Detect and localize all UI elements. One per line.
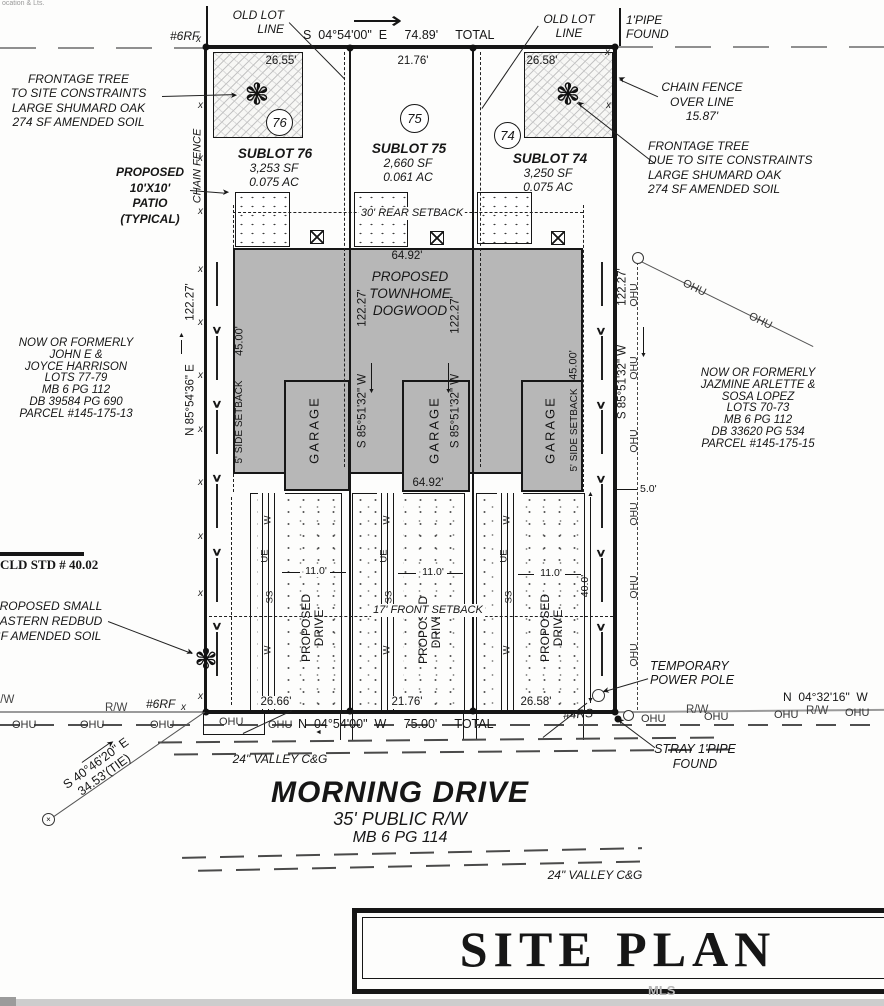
window-edge-strip [0,999,884,1006]
chevron-icon: ∨ [595,324,607,338]
dim-front-76: 26.55' [266,55,297,68]
building-width-bottom: 64.92' [413,477,444,490]
bearing-arrow-line [181,340,182,354]
arrow-down-icon: ▼ [640,352,647,359]
rear-setback-label: 30' REAR SETBACK [359,207,465,220]
valley-gutter-line [182,847,642,859]
fence-x-icon: x [198,264,203,275]
frontage-tree-note-left: FRONTAGE TREETO SITE CONSTRAINTSLARGE SH… [0,72,157,129]
dim-tick [398,573,416,574]
lot-number: 74 [500,128,514,143]
old-lot-line-2 [480,52,481,467]
owner-note-right: NOW OR FORMERLYJAZMINE ARLETTE &SOSA LOP… [682,368,834,451]
street-plat: MB 6 PG 114 [353,829,448,848]
dim-tick [447,573,463,574]
arrow-up-icon: ▲ [178,332,185,339]
boundary-line-left [204,45,207,714]
valley-gutter-line [158,737,723,744]
ohu-label: OHU [845,707,869,720]
utility-w-label: W [381,516,392,525]
stray-pipe-dot [615,716,622,723]
boundary-line-top [204,45,617,49]
utility-box-icon [310,230,324,244]
arrow-down-icon: ▼ [445,388,452,395]
utility-w-label: W [501,646,512,655]
ohu-label: OHU [628,356,640,379]
ohu-label-diagonal: OHU [746,310,774,332]
dim-rear-75: 21.76' [390,696,425,709]
valley-gutter-label-2: 24" VALLEY C&G [548,869,643,883]
drive-label-74: PROPOSEDDRIVE [539,594,565,662]
chevron-icon: ∨ [211,397,223,411]
top-bearing: S 04°54'00" E 74.89' TOTAL [303,28,494,43]
ohu-label: OHU [80,719,104,732]
ohu-label: OHU [628,643,640,666]
utility-line [381,493,382,710]
fence-x-icon: x [198,588,203,599]
swale-line-drive1 [231,497,232,705]
chain-fence-over-note: CHAIN FENCEOVER LINE15.87' [652,80,752,124]
fence-x-icon: x [198,153,203,164]
ohu-label: OHU [150,719,174,732]
drive-width-76: 11.0' [303,565,329,577]
old-lot-line-label-left: OLD LOTLINE [224,8,284,37]
building-depth-left: 45.00' [234,326,247,356]
ohu-label: OHU [219,716,243,729]
drive-width-75: 11.0' [420,566,446,578]
patio-sublot76 [235,192,290,247]
street-bearing-right: N 04°32'16" W [783,691,868,705]
bearing-arrow-line [643,327,644,355]
sublot76-sf: 3,253 SF [250,162,299,176]
street-row: 35' PUBLIC R/W [333,809,466,830]
fence-x-icon: x [605,47,610,58]
lot-number-circle-75: 75 [400,104,429,133]
utility-box-icon [551,231,565,245]
arrow-head-icon: ➤ [222,187,230,198]
sublot74-sf: 3,250 SF [524,167,573,181]
cld-std-bar [0,552,84,556]
utility-ss-label: SS [264,591,275,604]
dim-line-40ft [590,497,591,703]
old-lot-line-label-right: OLD LOTLINE [538,12,600,41]
sublot76-name: SUBLOT 76 [238,146,312,162]
side-setback-label-left: 5' SIDE SETBACK [234,380,246,463]
arrow-head-icon: ➤ [230,90,238,101]
dim-front-74: 26.58' [527,55,558,68]
corner-monument [612,44,619,51]
ohu-label: OHU [12,719,36,732]
chevron-icon: ∨ [211,545,223,559]
patio-note: PROPOSED10'X10'PATIO(TYPICAL) [110,165,190,227]
temp-pole-icon [592,689,605,702]
utility-line [501,493,502,710]
mls-watermark: MLS [648,983,675,998]
lot-number: 75 [407,111,421,126]
drive-area-sublot75 [352,493,465,712]
cutoff-corner-text: ocation & Lts. [2,0,44,8]
owner-note-left: NOW OR FORMERLYJOHN E &JOYCE HARRISONLOT… [0,338,152,421]
bottom-bearing: N 04°54'00" W 75.00' TOTAL [298,717,494,732]
dim-tick [330,572,346,573]
lot-line-bearing-right: S 85°51'32" W [449,374,462,448]
sublot74-name: SUBLOT 74 [513,151,587,167]
old-lot-line-1 [344,52,345,467]
cld-std-label: CLD STD # 40.02 [0,557,98,572]
street-name: MORNING DRIVE [271,776,529,811]
sublot75-sf: 2,660 SF [384,157,433,171]
lot-number-circle-76: 76 [266,109,293,136]
pin-stub-top-left [206,6,208,46]
arrow-up-icon: ▲ [587,491,594,498]
chevron-icon: ∨ [211,323,223,337]
sublot74-ac: 0.075 AC [523,181,573,195]
utility-w-label: W [381,646,392,655]
chevron-icon: ∨ [211,471,223,485]
rw-label: R/W [105,702,127,715]
sublot75-name: SUBLOT 75 [372,141,446,157]
patio-sublot74 [477,192,532,244]
frontage-tree-note-right: FRONTAGE TREEDUE TO SITE CONSTRAINTSLARG… [648,139,812,196]
fence-x-icon: x [606,100,611,111]
building-width-top: 64.92' [390,250,425,263]
dim-rear-76: 26.66' [259,696,294,709]
side-setback-label-right: 5' SIDE SETBACK [569,388,581,471]
drive-width-74: 11.0' [538,567,564,579]
side-gap-tick [615,489,637,490]
garage-label-76: GARAGE [306,396,321,464]
utility-ss-label: SS [503,591,514,604]
fence-x-icon: x [198,206,203,217]
utility-line [262,493,263,710]
chevron-icon: ∨ [595,398,607,412]
fence-x-icon: x [198,100,203,111]
lot-number-circle-74: 74 [494,122,521,149]
side-gap-dim: 5.0' [640,483,657,495]
rw-label: R/W [0,694,14,707]
apron-depth-dim: 40.0' [579,575,591,597]
garage-label-74: GARAGE [542,396,557,464]
window-edge-corner [0,997,16,1006]
monument-circle-icon: × [42,813,55,826]
rs4-marker: #4RS [563,707,594,723]
fence-x-icon: x [198,370,203,381]
rw-label: R/W [686,704,708,717]
rf6-marker-bottom: #6RF [146,698,175,712]
tree-icon: ❃ [555,78,580,113]
front-setback-label: 17' FRONT SETBACK [371,604,485,617]
fence-x-icon: x [181,702,186,713]
lot-line-bearing-left: S 85°51'32" W [356,374,369,448]
fence-x-icon: x [196,34,201,45]
fence-x-icon: x [198,317,203,328]
rw-extension-line-top-left [0,47,204,49]
dim-front-75: 21.76' [398,55,429,68]
utility-w-label: W [262,646,273,655]
utility-ss-label: SS [383,591,394,604]
lot-number: 76 [272,115,286,130]
ohu-label: OHU [628,502,640,525]
tree-icon: ❃ [194,643,217,676]
sublot76-ac: 0.075 AC [249,176,299,190]
dim-tick [518,574,534,575]
utility-w-label: W [262,516,273,525]
corner-monument [203,44,210,51]
fence-x-icon: x [198,691,203,702]
redbud-note: PROPOSED SMALLEASTERN REDBUDSF AMENDED S… [0,599,108,644]
lot-line-76-75 [349,48,351,711]
chevron-icon: ∨ [595,620,607,634]
utility-ue-label: UE [498,549,509,562]
corner-monument [612,709,619,716]
power-pole-icon [632,252,644,264]
tie-bearing-note: S 40°46'20" E 34.53'(TIE) [47,725,152,812]
utility-ue-label: UE [378,549,389,562]
bearing-arrow-line [448,363,449,391]
chain-fence-label: CHAIN FENCE [192,129,205,204]
dim-tick [282,572,300,573]
ohu-line-diagonal [641,261,814,347]
left-boundary-bearing: N 85°54'36" E [184,364,197,436]
pipe-stub-top-right [619,8,621,46]
ohu-label: OHU [628,283,640,306]
fence-x-icon: x [198,531,203,542]
stray-pipe-note: STRAY 1'PIPEFOUND [645,742,745,772]
drive-label-76: PROPOSEDDRIVE [300,594,326,662]
utility-w-label: W [501,516,512,525]
corner-monument [347,45,354,52]
fence-x-icon: x [198,477,203,488]
arrow-left-icon: ◄ [315,729,322,736]
temp-pole-note: TEMPORARYPOWER POLE [650,659,734,687]
utility-ue-label: UE [259,549,270,562]
lot-line-dist-right: 122.27' [449,296,462,333]
utility-box-icon [430,231,444,245]
building-depth-right: 45.00' [568,350,581,380]
rf6-marker-top: #6RF [170,30,199,44]
ohu-label: OHU [628,429,640,452]
ohu-label-diagonal: OHU [680,277,708,299]
drive-area-sublot74 [476,493,585,712]
left-boundary-dist: 122.27' [184,283,197,320]
leader-redbud [108,621,193,654]
monument-cross: × [46,815,51,824]
arrow-down-icon: ▼ [368,388,375,395]
rw-extension-line-top-right [617,46,884,48]
dim-rear-74: 26.58' [519,696,554,709]
pipe-found-label: 1'PIPEFOUND [626,13,669,42]
bearing-arrow-line [371,363,372,391]
corner-monument [470,45,477,52]
fence-x-icon: x [198,424,203,435]
site-plan-page: { "meta": {"corner_fragment": "ocation &… [0,0,884,1006]
rw-label: R/W [806,705,828,718]
ohu-label: OHU [774,709,798,722]
valley-gutter-label-1: 24" VALLEY C&G [233,753,328,767]
chevron-icon: ∨ [595,472,607,486]
chevron-icon: ∨ [211,619,223,633]
lot-line-dist-left: 122.27' [356,289,369,326]
tree-icon: ❃ [244,78,269,113]
ohu-label: OHU [641,713,665,726]
pole-ring-icon [623,710,634,721]
side-setback-line-right [583,205,584,492]
ohu-label: OHU [268,719,292,732]
sublot75-ac: 0.061 AC [383,171,433,185]
chevron-icon: ∨ [595,546,607,560]
ohu-label: OHU [628,575,640,598]
garage-label-75: GARAGE [426,396,441,464]
sheet-title: SITE PLAN [352,920,884,978]
